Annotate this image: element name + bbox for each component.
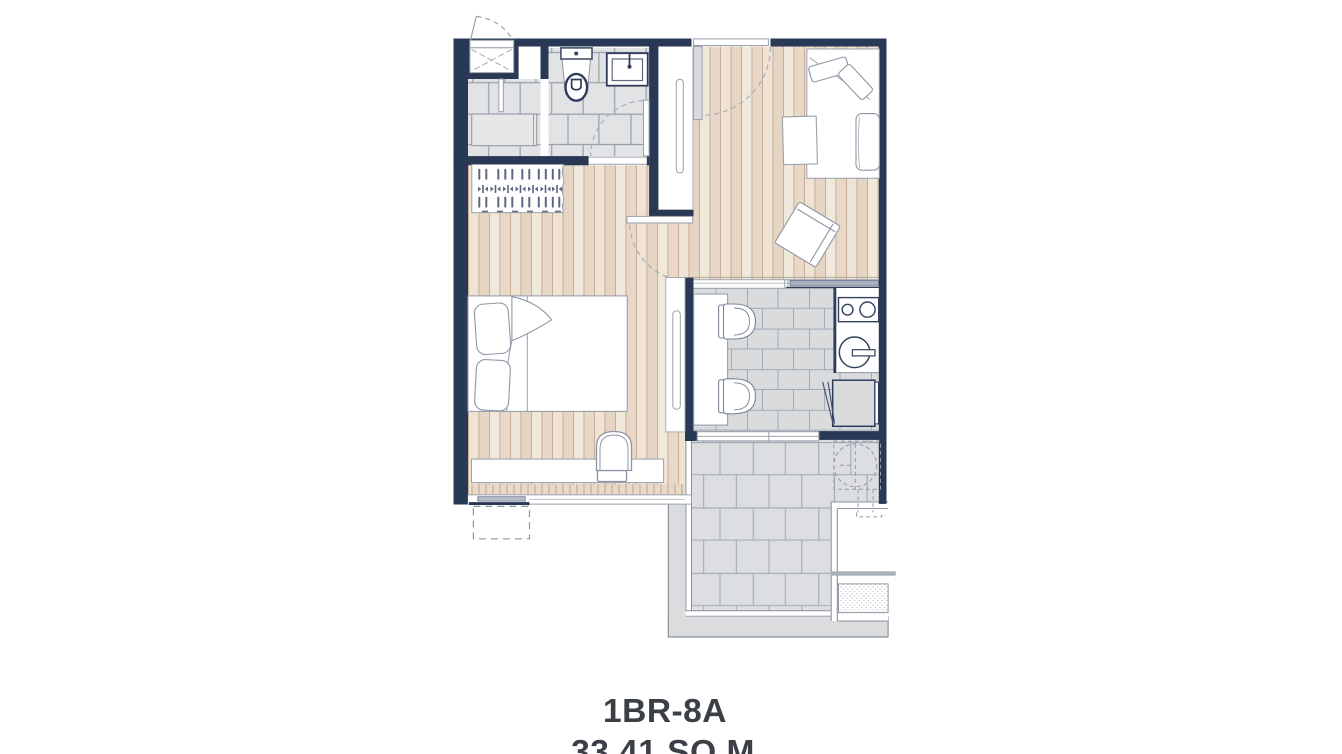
svg-text:1BR-8A: 1BR-8A [603,693,727,730]
svg-text:33.41 SQ M: 33.41 SQ M [571,734,755,754]
